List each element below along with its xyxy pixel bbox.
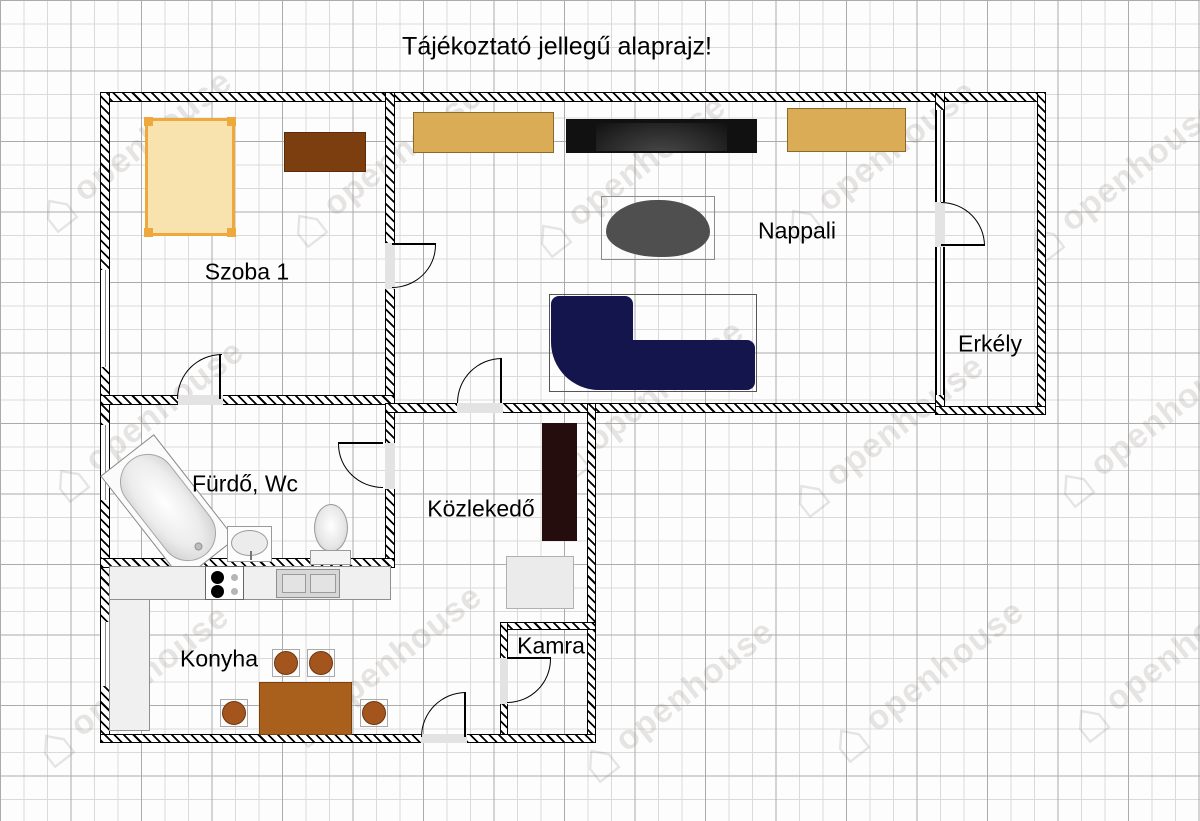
room-label-nappali: Nappali: [758, 218, 836, 245]
sofa-right-arm: [608, 340, 755, 390]
wall-kamra-top: [500, 622, 596, 630]
tv-unit: [566, 119, 757, 153]
kitchen-counter-left: [109, 599, 150, 731]
toilet-tank: [310, 550, 351, 565]
wall-erkely-bottom: [935, 406, 1046, 415]
chair: [362, 701, 386, 725]
stove-burner: [211, 571, 224, 584]
bed-post: [144, 117, 153, 126]
door-opening-nappali: [457, 403, 503, 413]
kitchen-sink: [276, 569, 340, 598]
bed-post: [227, 228, 236, 237]
chair: [222, 701, 246, 725]
chair: [309, 651, 333, 675]
plan-title: Tájékoztató jellegű alaprajz!: [402, 33, 712, 62]
room-label-kozlekedo: Közlekedő: [427, 496, 534, 523]
bed-post: [227, 117, 236, 126]
door-leaf-konyha: [464, 692, 466, 737]
room-label-erkely: Erkély: [958, 331, 1022, 358]
room-label-kamra: Kamra: [517, 633, 585, 660]
kitchen-sink-basin: [310, 574, 336, 593]
dresser: [284, 132, 366, 172]
wardrobe: [542, 423, 577, 541]
room-label-furdo: Fürdő, Wc: [192, 471, 298, 498]
tv-screen: [596, 123, 727, 151]
window-furdo: [100, 425, 110, 500]
coffee-table: [606, 200, 710, 257]
bed: [145, 118, 235, 236]
door-leaf-nappali: [500, 358, 502, 403]
sideboard-left: [413, 112, 554, 153]
kitchen-counter-top: [109, 566, 391, 600]
window-szoba1: [100, 270, 110, 367]
chair: [274, 651, 298, 675]
door-leaf-furdo: [338, 442, 383, 444]
door-leaf-erkely: [941, 244, 985, 246]
bed-post: [144, 228, 153, 237]
stove: [205, 566, 244, 600]
hall-cabinet: [506, 556, 574, 609]
sideboard-right: [787, 108, 906, 152]
window-nappali-erkely-upper: [936, 110, 944, 202]
toilet-bowl: [314, 504, 348, 552]
washbasin-tap: [250, 551, 252, 560]
window-nappali-erkely-lower: [936, 247, 944, 395]
wall-kozlekedo-right: [587, 403, 596, 742]
room-label-konyha: Konyha: [180, 646, 258, 673]
door-leaf-szoba1-nappali: [392, 243, 436, 245]
wall-erkely-right: [1037, 92, 1046, 415]
wall-top: [100, 92, 1046, 102]
wall-szoba1-furdo: [100, 395, 395, 405]
room-label-szoba1: Szoba 1: [205, 259, 289, 286]
kitchen-sink-basin: [282, 574, 306, 593]
stove-burner: [211, 585, 224, 598]
stove-burner-small: [231, 588, 238, 595]
door-opening-furdo: [385, 443, 395, 489]
stove-burner-small: [231, 574, 238, 581]
floor-plan: ⌂openhouse ⌂openhouse ⌂openhouse ⌂openho…: [0, 0, 1200, 821]
kitchen-table: [259, 682, 352, 735]
washbasin: [227, 526, 272, 562]
wall-bottom: [100, 734, 596, 743]
door-leaf-szoba1: [219, 354, 221, 399]
